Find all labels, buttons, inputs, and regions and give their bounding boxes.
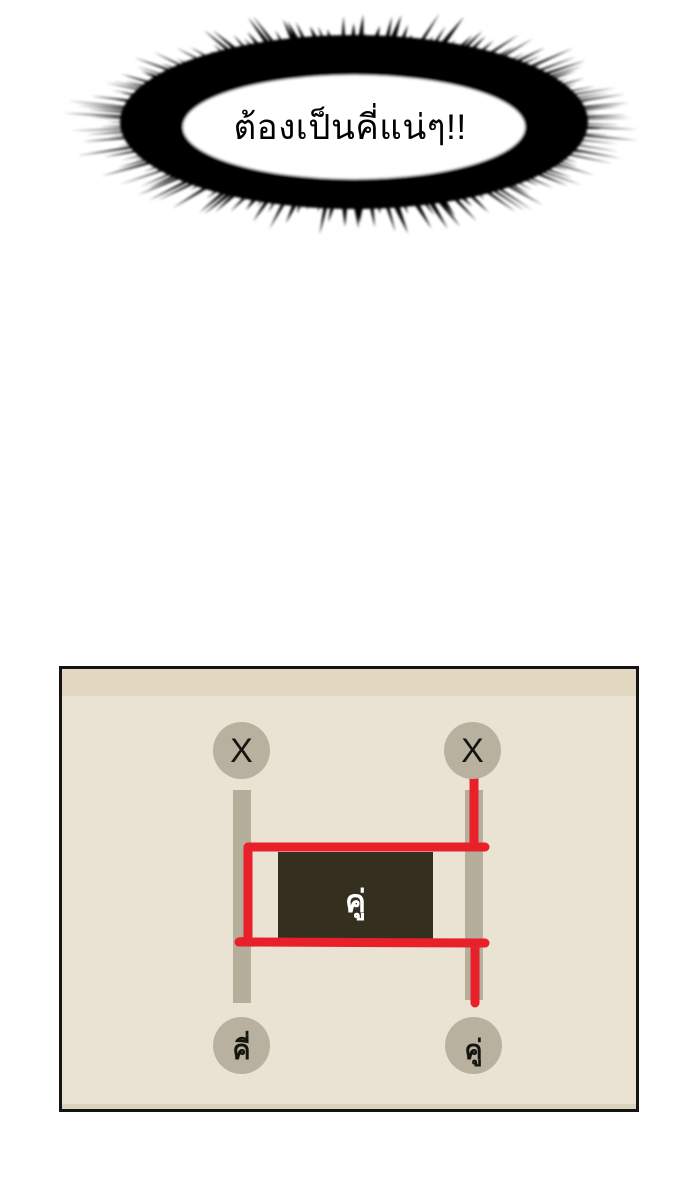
node-bottom-left: คี่ [213, 1017, 270, 1074]
node-top-right: X [444, 722, 501, 779]
node-bottom-right: คู่ [445, 1017, 502, 1074]
diagram-panel: คู่ X X คี่ คู่ [59, 666, 639, 1112]
comic-page: ต้องเป็นคี่แน่ๆ!! คู่ X X คี่ คู่ [0, 0, 700, 1196]
node-top-left-label: X [230, 734, 253, 768]
traced-path-icon [62, 669, 636, 1109]
node-top-left: X [213, 722, 270, 779]
speech-bubble: ต้องเป็นคี่แน่ๆ!! [0, 0, 700, 254]
node-bottom-right-label: คู่ [464, 1027, 482, 1064]
node-bottom-left-label: คี่ [232, 1027, 250, 1064]
speech-bubble-text: ต้องเป็นคี่แน่ๆ!! [0, 0, 700, 250]
node-top-right-label: X [461, 734, 484, 768]
